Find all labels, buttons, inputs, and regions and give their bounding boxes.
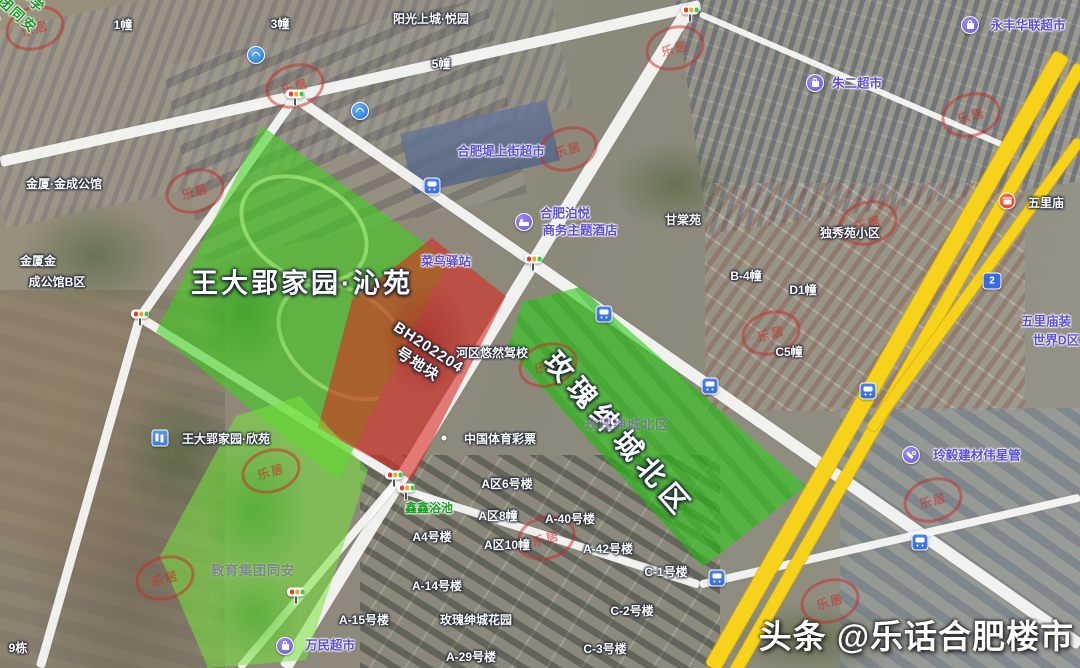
label-xinxin-bath[interactable]: 鑫鑫浴池 [405,501,453,515]
satellite-map[interactable]: 乐居乐居乐居乐居乐居乐居乐居乐居乐居乐居乐居乐居乐居乐居 王大郢家园·沁苑 BH… [0,0,1080,668]
label-building-9: 9栋 [9,641,28,655]
label-a10: A区10幢 [484,538,530,552]
label-building-5: 5幢 [432,57,451,71]
label-a8: A区8幢 [478,509,517,523]
label-jinxia-b-2: 成公馆B区 [29,275,86,289]
label-cainiao-station[interactable]: 菜鸟驿站 [421,255,471,270]
label-yongfeng-hualian-market[interactable]: 永丰华联超市 [990,19,1065,34]
label-boyue-hotel-2[interactable]: 商务主题酒店 [542,224,617,239]
label-d1: D1幢 [789,283,816,297]
label-duxiuyuan: 独秀苑小区 [820,226,880,240]
label-lingyi-materials[interactable]: 玲毅建材伟星管 [933,449,1021,464]
label-sports-lottery: 中国体育彩票 [464,432,536,446]
label-building-3: 3幢 [271,17,290,31]
watermark-source: 头条 [759,618,827,655]
label-school-base-faint: 教育集团同安 [211,563,295,579]
label-boyue-hotel-1[interactable]: 合肥泊悦 [540,207,590,222]
label-driving-school: 河区悠然驾校 [456,346,528,360]
watermark: 头条 @乐话合肥楼市 [759,610,1074,658]
labels-layer: 1幢3幢阳光上城·悦园5幢永丰华联超市朱二超市金厦·金成公馆合肥堤上街超市合肥泊… [0,0,1080,668]
label-wanmin-market[interactable]: 万民超市 [305,639,355,654]
label-c2: C-2号楼 [610,604,653,618]
label-yangguang-shangcheng: 阳光上城·悦园 [393,12,469,26]
label-jinxia-b-1: 金厦金 [20,254,56,268]
label-a29: A-29号楼 [446,650,496,664]
watermark-account: @乐话合肥楼市 [837,618,1074,655]
label-building-1: 1幢 [114,18,133,32]
label-a42: A-42号楼 [583,542,633,556]
label-b4: B-4幢 [730,269,761,283]
label-gantangyuan: 甘棠苑 [665,213,701,227]
label-a40: A-40号楼 [545,512,595,526]
label-dishangjie-market[interactable]: 合肥堤上街超市 [457,145,545,160]
label-a6: A区6号楼 [481,477,532,491]
label-a15: A-15号楼 [339,613,389,627]
label-c3: C-3号楼 [583,642,626,656]
label-jinxia-jincheng: 金厦·金成公馆 [26,177,102,191]
label-c1: C-1号楼 [644,565,687,579]
label-c5: C5幢 [775,345,802,359]
label-meigui-garden: 玫瑰绅城花园 [440,613,512,627]
label-meigui-base: 玫瑰绅城北区 [585,417,669,433]
label-wulimiao-deco-1[interactable]: 五里庙装 [1021,315,1071,330]
label-a4: A4号楼 [412,530,451,544]
label-zhuer-market[interactable]: 朱二超市 [832,77,882,92]
label-wulimiao: 五里庙 [1028,196,1064,210]
label-wulimiao-deco-2[interactable]: 世界D区 [1033,334,1080,349]
label-xinyuan: 王大郢家园·欣苑 [182,432,270,446]
label-a14: A-14号楼 [412,579,462,593]
